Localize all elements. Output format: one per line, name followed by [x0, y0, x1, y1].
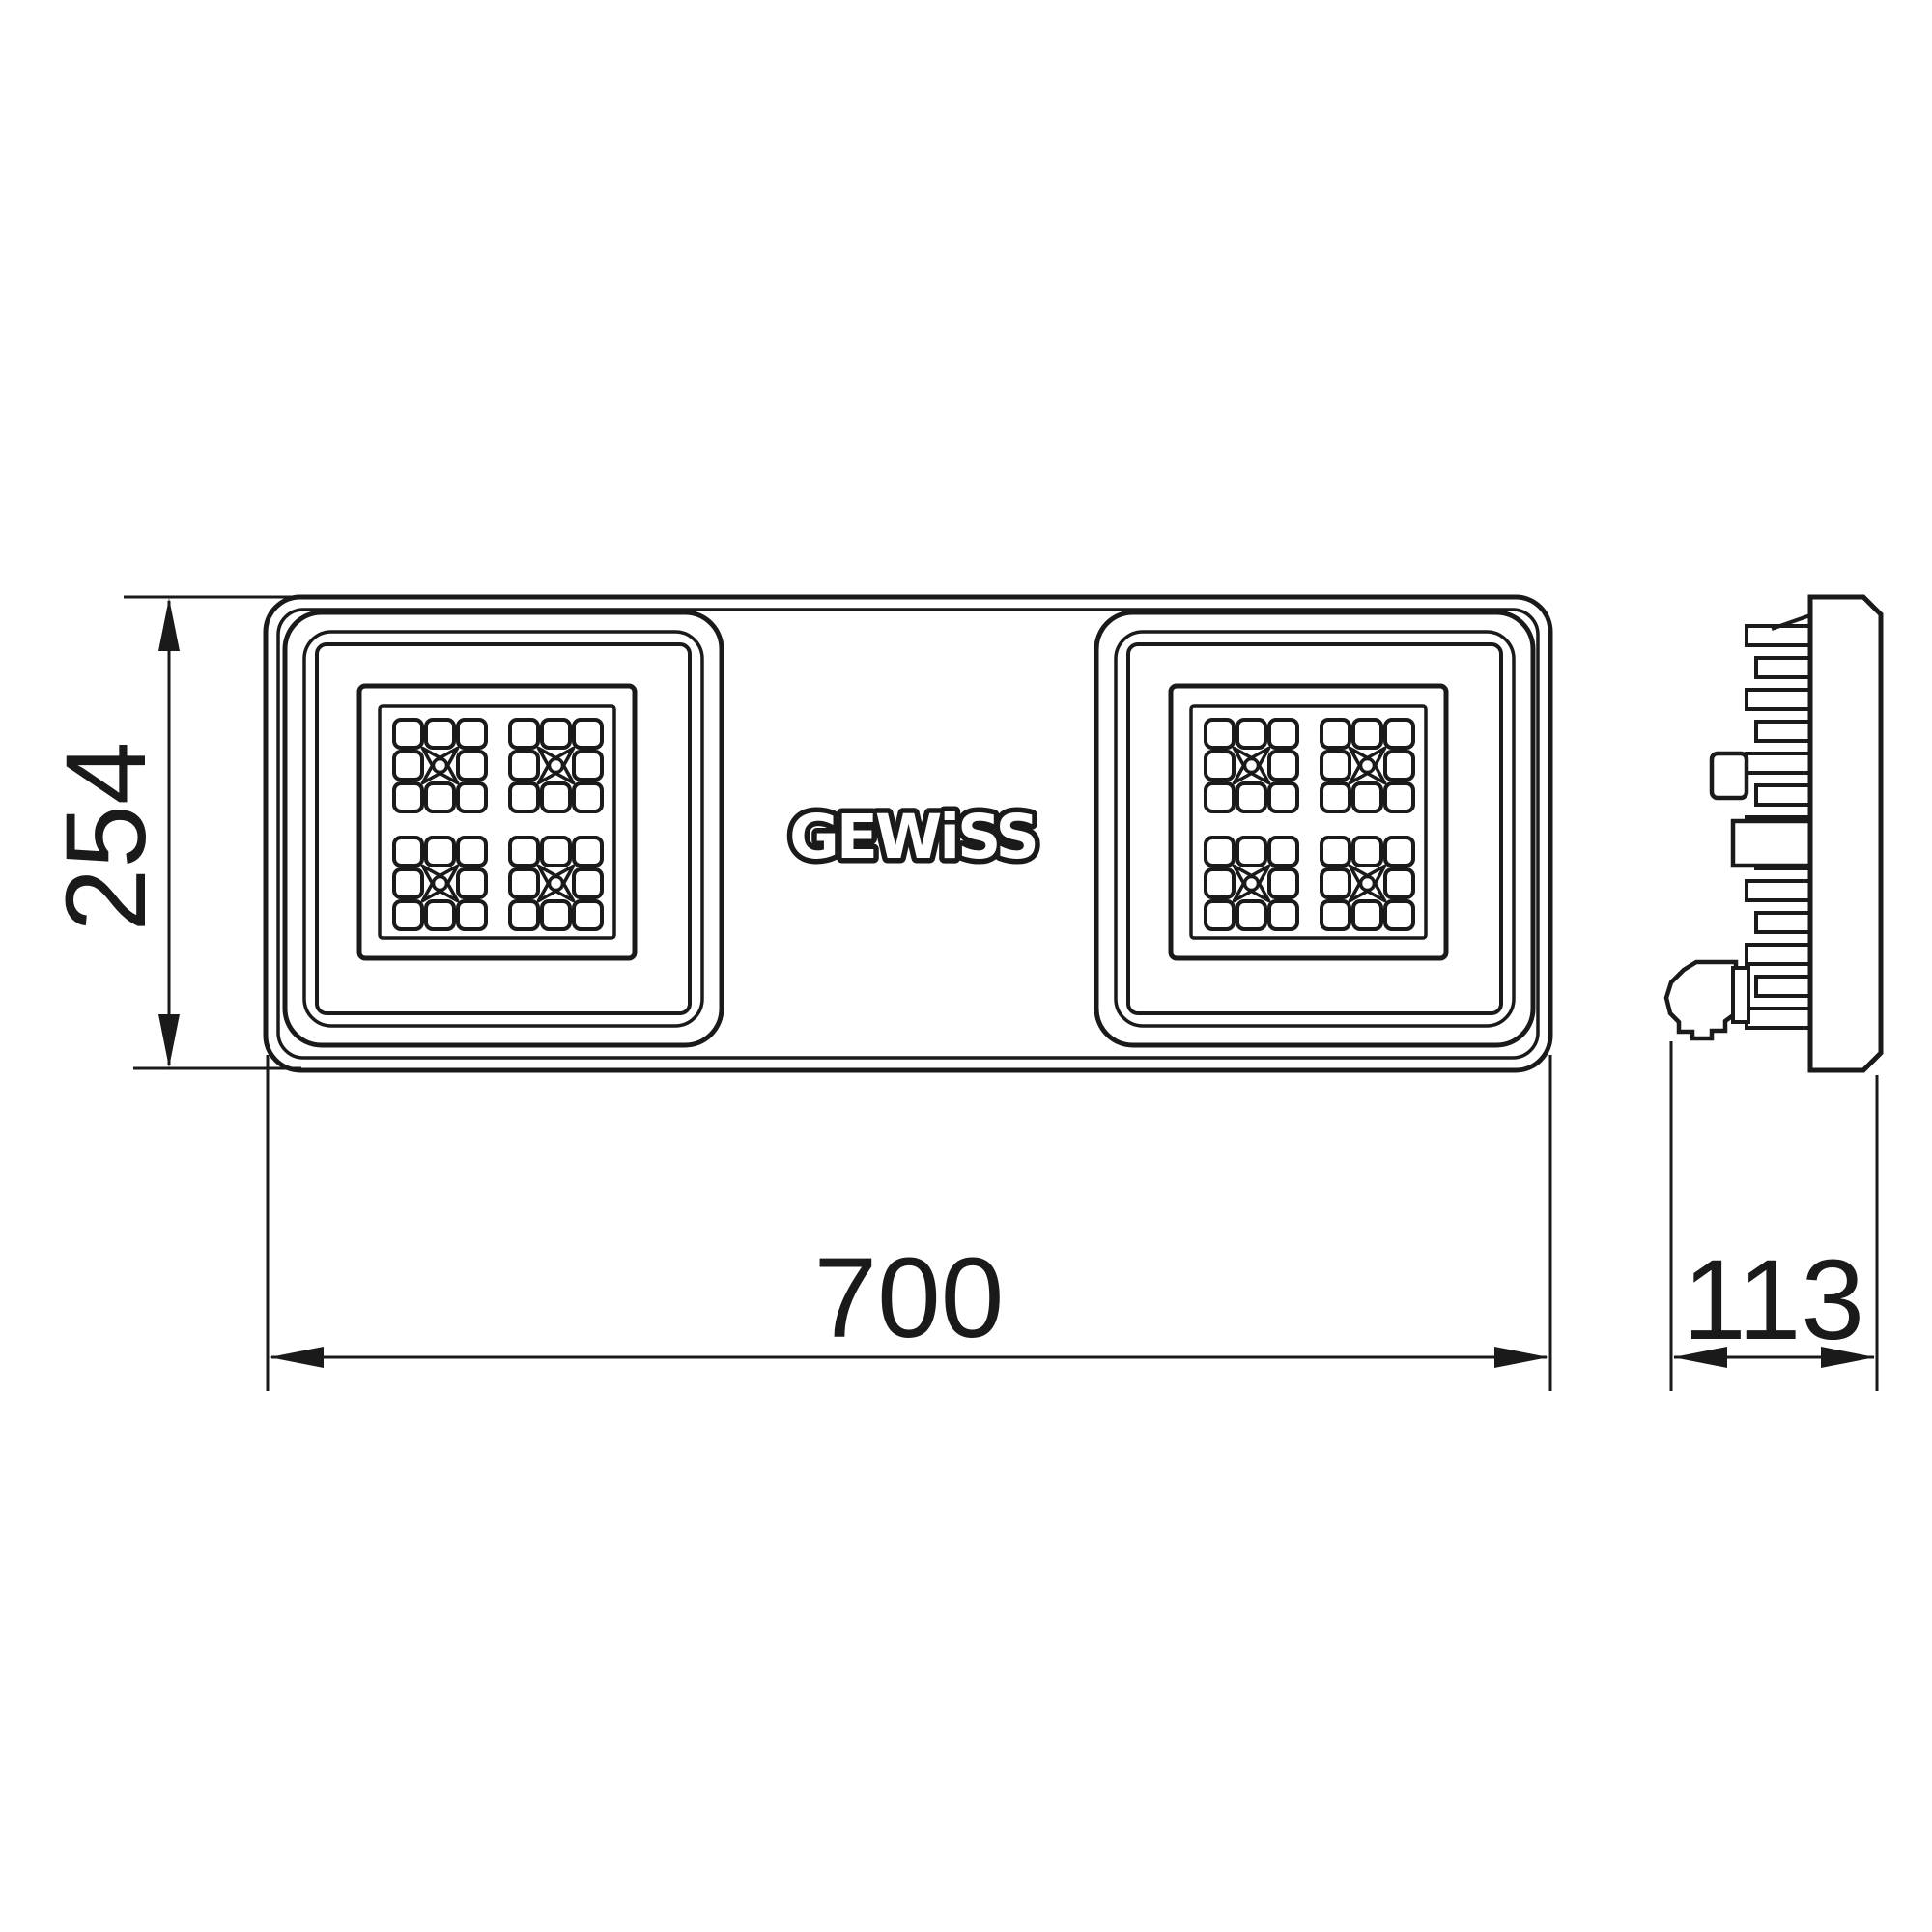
led-chip — [1321, 720, 1350, 748]
led-chip — [426, 901, 454, 929]
led-chip — [574, 783, 602, 811]
front-view: GEWiSS GEWiSS — [266, 597, 1550, 1070]
arrowhead-right — [1494, 1347, 1548, 1368]
led-chip — [1269, 783, 1297, 811]
led-chip — [574, 901, 602, 929]
led-cluster — [1206, 720, 1297, 811]
led-center-dot — [1361, 759, 1375, 773]
led-chip — [1237, 901, 1265, 929]
led-chip — [1206, 869, 1234, 897]
drawing-sheet: GEWiSS GEWiSS 254 700 — [0, 0, 1932, 1932]
side-front-plate — [1810, 597, 1881, 1070]
led-chip — [458, 869, 486, 897]
led-chip — [1353, 838, 1381, 866]
led-chip — [1206, 720, 1234, 748]
led-chip — [1321, 838, 1350, 866]
heatsink-fin — [1747, 753, 1810, 773]
heatsink-fin — [1756, 913, 1810, 932]
heatsink-fin — [1756, 977, 1810, 996]
led-cluster — [1206, 838, 1297, 929]
led-chip — [1385, 752, 1413, 780]
led-chip — [1206, 752, 1234, 780]
led-chip — [394, 783, 422, 811]
led-chip — [394, 752, 422, 780]
led-cluster — [510, 720, 602, 811]
heatsink-fin — [1747, 881, 1810, 900]
led-chip — [574, 720, 602, 748]
led-chip — [394, 869, 422, 897]
led-chip — [1385, 720, 1413, 748]
led-chip — [394, 901, 422, 929]
led-chip — [1237, 720, 1265, 748]
led-chip — [1385, 783, 1413, 811]
led-chip — [1321, 901, 1350, 929]
led-chip — [1385, 838, 1413, 866]
led-chip — [1206, 783, 1234, 811]
led-chip — [1385, 901, 1413, 929]
led-chip — [1353, 783, 1381, 811]
led-chip — [458, 720, 486, 748]
led-chip — [458, 752, 486, 780]
led-chip — [394, 720, 422, 748]
led-chip — [1353, 720, 1381, 748]
led-module — [1096, 612, 1533, 1045]
side-view — [1666, 597, 1881, 1070]
led-module — [285, 612, 722, 1045]
dimension-height-label: 254 — [43, 742, 170, 932]
led-cluster — [1321, 720, 1413, 811]
led-center-dot — [434, 877, 447, 891]
led-cluster — [510, 838, 602, 929]
dimension-depth: 113 — [1671, 1041, 1877, 1391]
led-chip — [542, 720, 570, 748]
led-chip — [1237, 838, 1265, 866]
led-chip — [394, 838, 422, 866]
heatsink-fin — [1756, 658, 1810, 677]
led-center-dot — [1245, 877, 1259, 891]
led-chip — [574, 838, 602, 866]
mounting-tab — [1712, 753, 1747, 798]
led-chip — [510, 901, 538, 929]
led-chip — [1206, 838, 1234, 866]
dimension-height: 254 — [43, 597, 301, 1068]
led-chip — [510, 783, 538, 811]
led-chip — [426, 720, 454, 748]
led-chip — [1353, 901, 1381, 929]
led-chip — [1206, 901, 1234, 929]
gewiss-logo-text: GEWiSS — [789, 802, 1037, 872]
led-chip — [1269, 752, 1297, 780]
arrowhead-up — [158, 598, 180, 651]
technical-drawing: GEWiSS GEWiSS 254 700 — [0, 0, 1932, 1932]
led-chip — [1269, 901, 1297, 929]
led-cluster — [1321, 838, 1413, 929]
led-chip — [574, 869, 602, 897]
led-chip — [510, 838, 538, 866]
dimension-width: 700 — [268, 1055, 1550, 1391]
gewiss-logo: GEWiSS GEWiSS — [789, 802, 1037, 872]
heatsink-fin — [1747, 1009, 1810, 1028]
led-chip — [1385, 869, 1413, 897]
led-chip — [458, 783, 486, 811]
led-chip — [1269, 720, 1297, 748]
dimension-width-label: 700 — [814, 1235, 1005, 1362]
led-chip — [1321, 869, 1350, 897]
dimension-depth-label: 113 — [1683, 1236, 1864, 1364]
heatsink-block — [1733, 821, 1810, 866]
arrowhead-left — [270, 1347, 324, 1368]
led-chip — [458, 901, 486, 929]
led-center-dot — [1361, 877, 1375, 891]
led-center-dot — [434, 759, 447, 773]
led-center-dot — [550, 759, 563, 773]
led-chip — [1321, 783, 1350, 811]
led-center-dot — [1245, 759, 1259, 773]
led-cluster — [394, 838, 486, 929]
arrowhead-down — [158, 1014, 180, 1067]
led-chip — [510, 720, 538, 748]
heatsink-fin — [1756, 785, 1810, 805]
led-chip — [1321, 752, 1350, 780]
led-chip — [510, 752, 538, 780]
led-chip — [542, 901, 570, 929]
led-chip — [1269, 838, 1297, 866]
led-chip — [574, 752, 602, 780]
gland-collar — [1733, 968, 1748, 1022]
led-chip — [1269, 869, 1297, 897]
heatsink-fin — [1747, 626, 1810, 645]
heatsink-fin — [1756, 722, 1810, 741]
led-chip — [426, 783, 454, 811]
heatsink-fin — [1747, 945, 1810, 964]
led-chip — [426, 838, 454, 866]
heatsink-fin — [1747, 690, 1810, 709]
cable-gland — [1666, 962, 1736, 1038]
led-chip — [1237, 783, 1265, 811]
led-center-dot — [550, 877, 563, 891]
led-chip — [542, 838, 570, 866]
led-cluster — [394, 720, 486, 811]
led-chip — [458, 838, 486, 866]
led-chip — [542, 783, 570, 811]
led-chip — [510, 869, 538, 897]
